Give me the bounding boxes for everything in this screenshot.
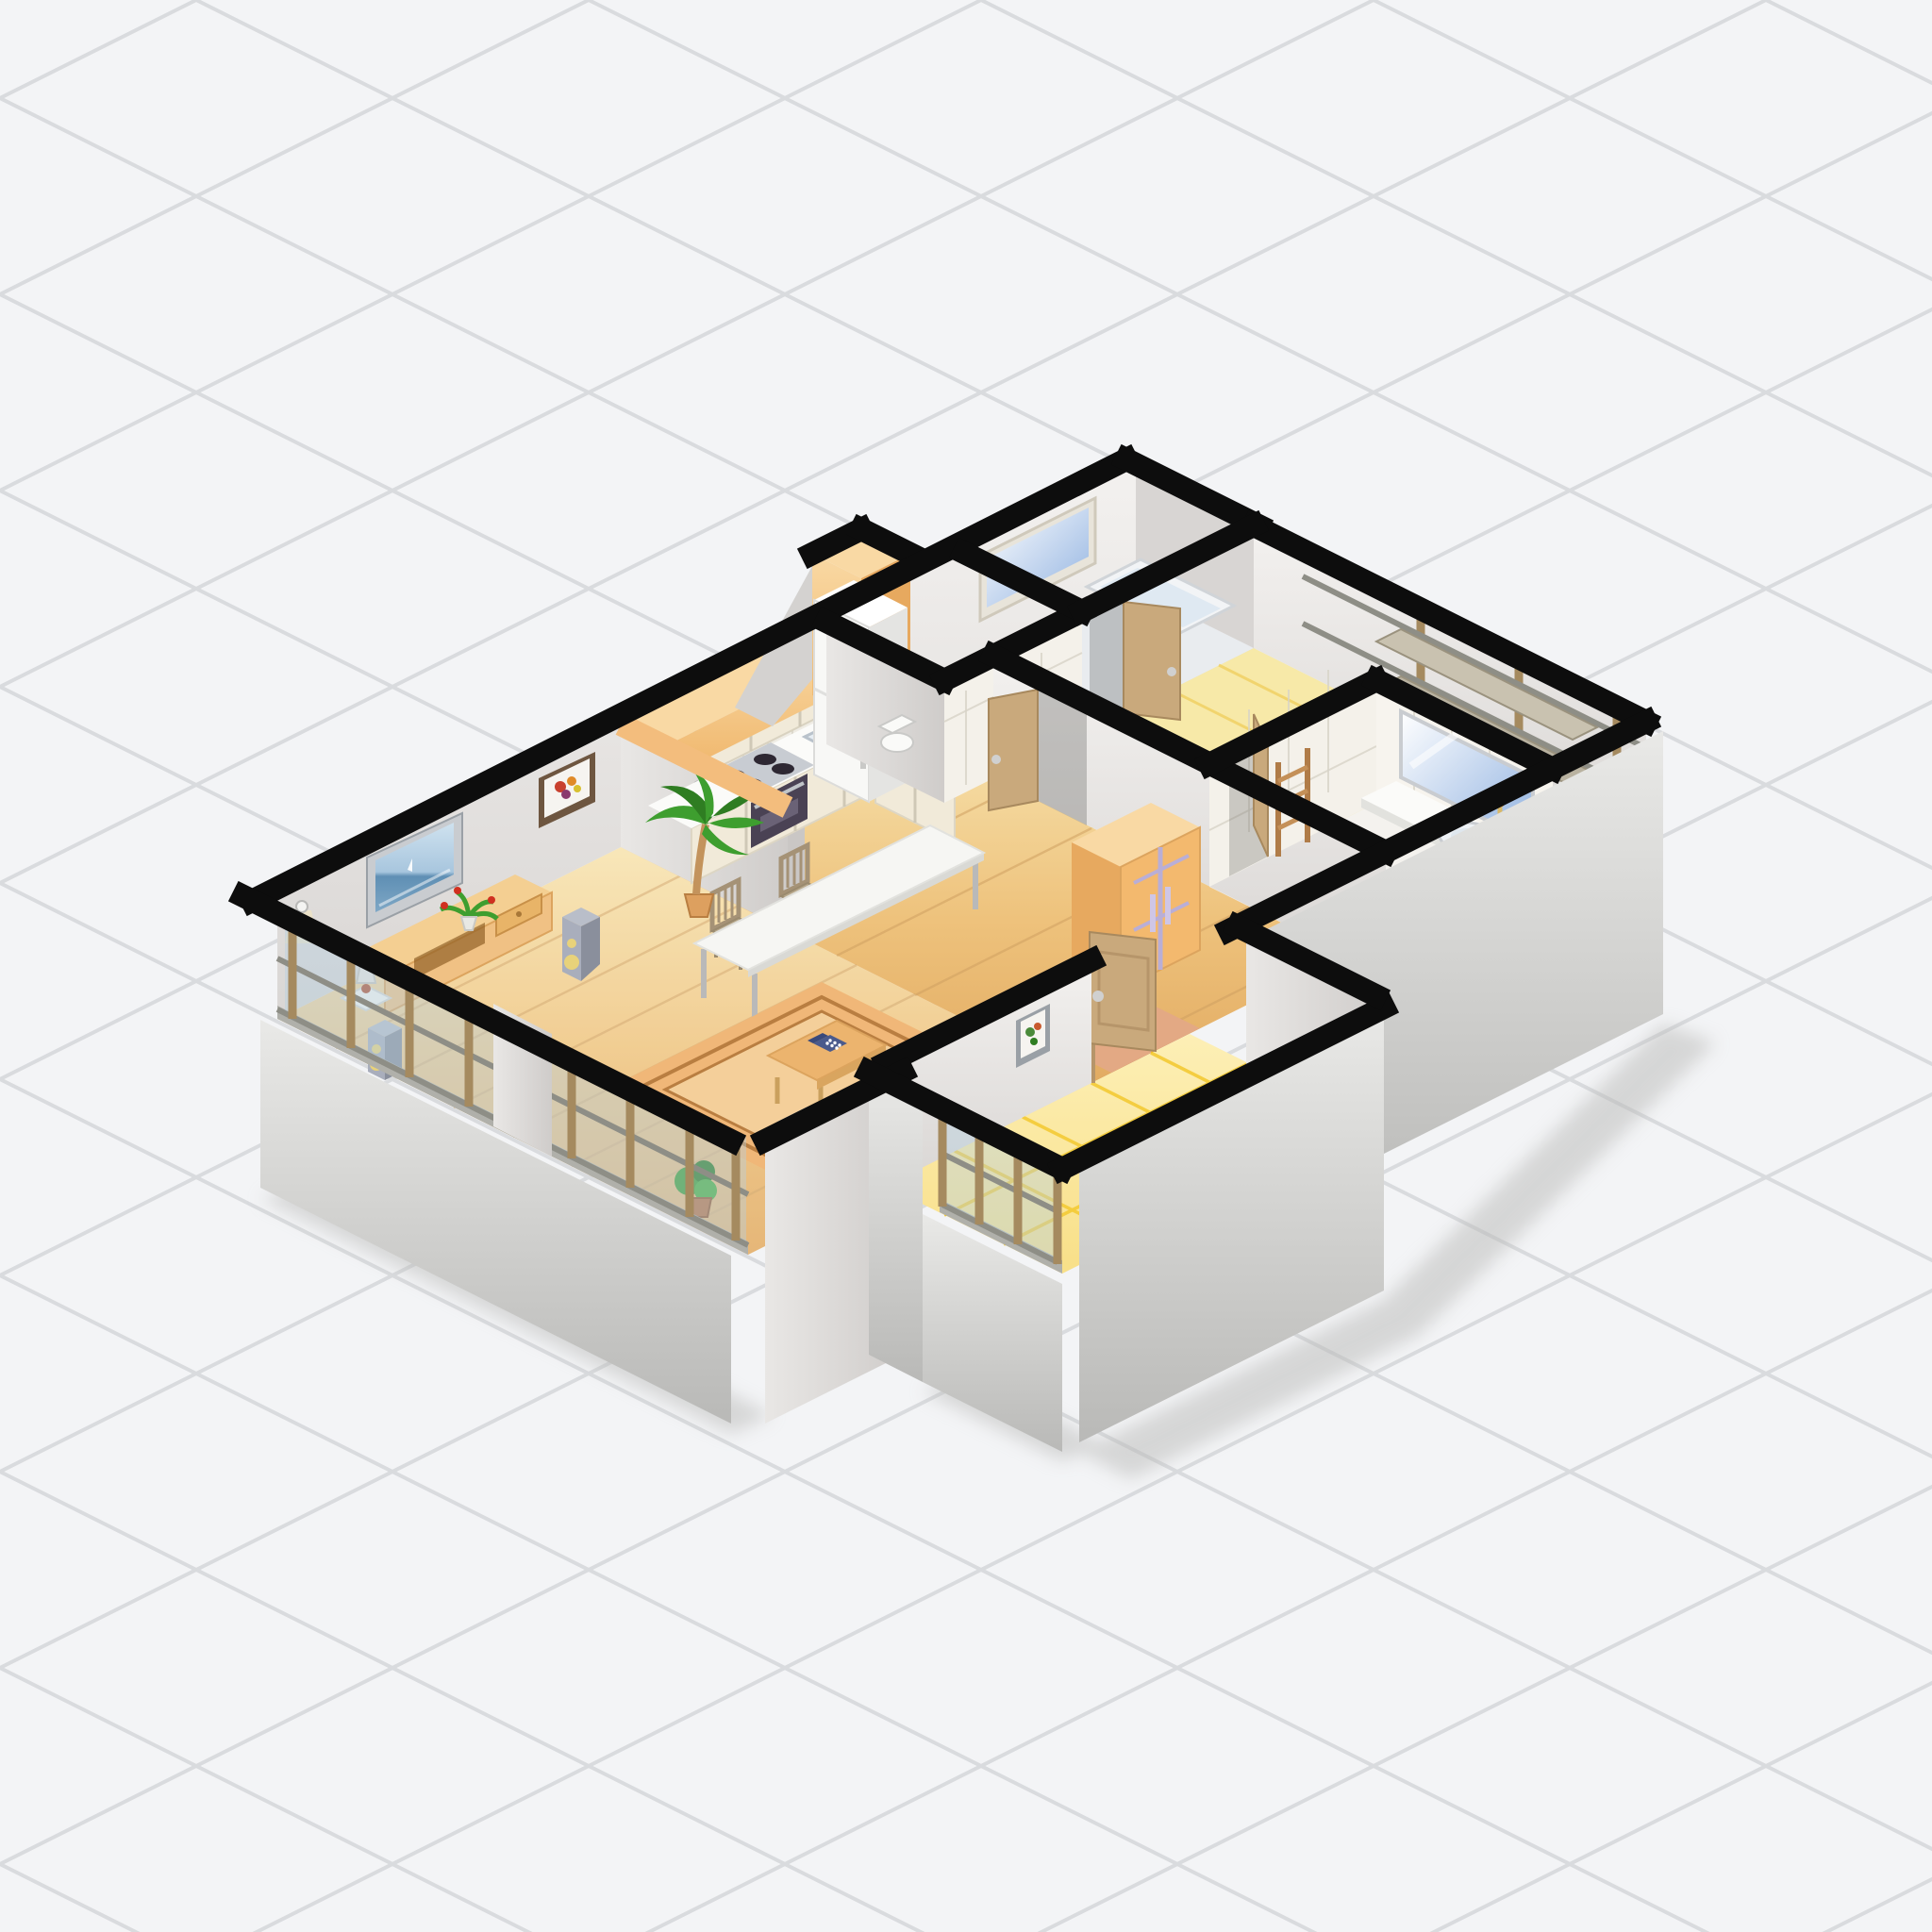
door-leaf <box>989 690 1038 810</box>
door-knob-icon <box>991 755 1001 764</box>
toilet-bowl <box>881 733 913 752</box>
sconce-lamp-icon <box>296 901 308 912</box>
door-knob-icon <box>1092 991 1104 1002</box>
palm-pot <box>685 894 713 917</box>
plant-pot <box>461 917 476 930</box>
door-leaf <box>1124 602 1180 720</box>
speaker-front <box>562 917 581 981</box>
burner-icon <box>772 763 794 774</box>
door-knob-icon <box>1167 667 1176 676</box>
burner-icon <box>754 754 776 765</box>
drawer-knob-icon <box>516 911 522 917</box>
entry-sw-corner-column <box>869 1072 923 1382</box>
floorplan-illustration: Isometric 3D apartment floor plan cutawa… <box>0 0 1932 1932</box>
floorplan-stage: Isometric 3D apartment floor plan cutawa… <box>0 0 1932 1932</box>
